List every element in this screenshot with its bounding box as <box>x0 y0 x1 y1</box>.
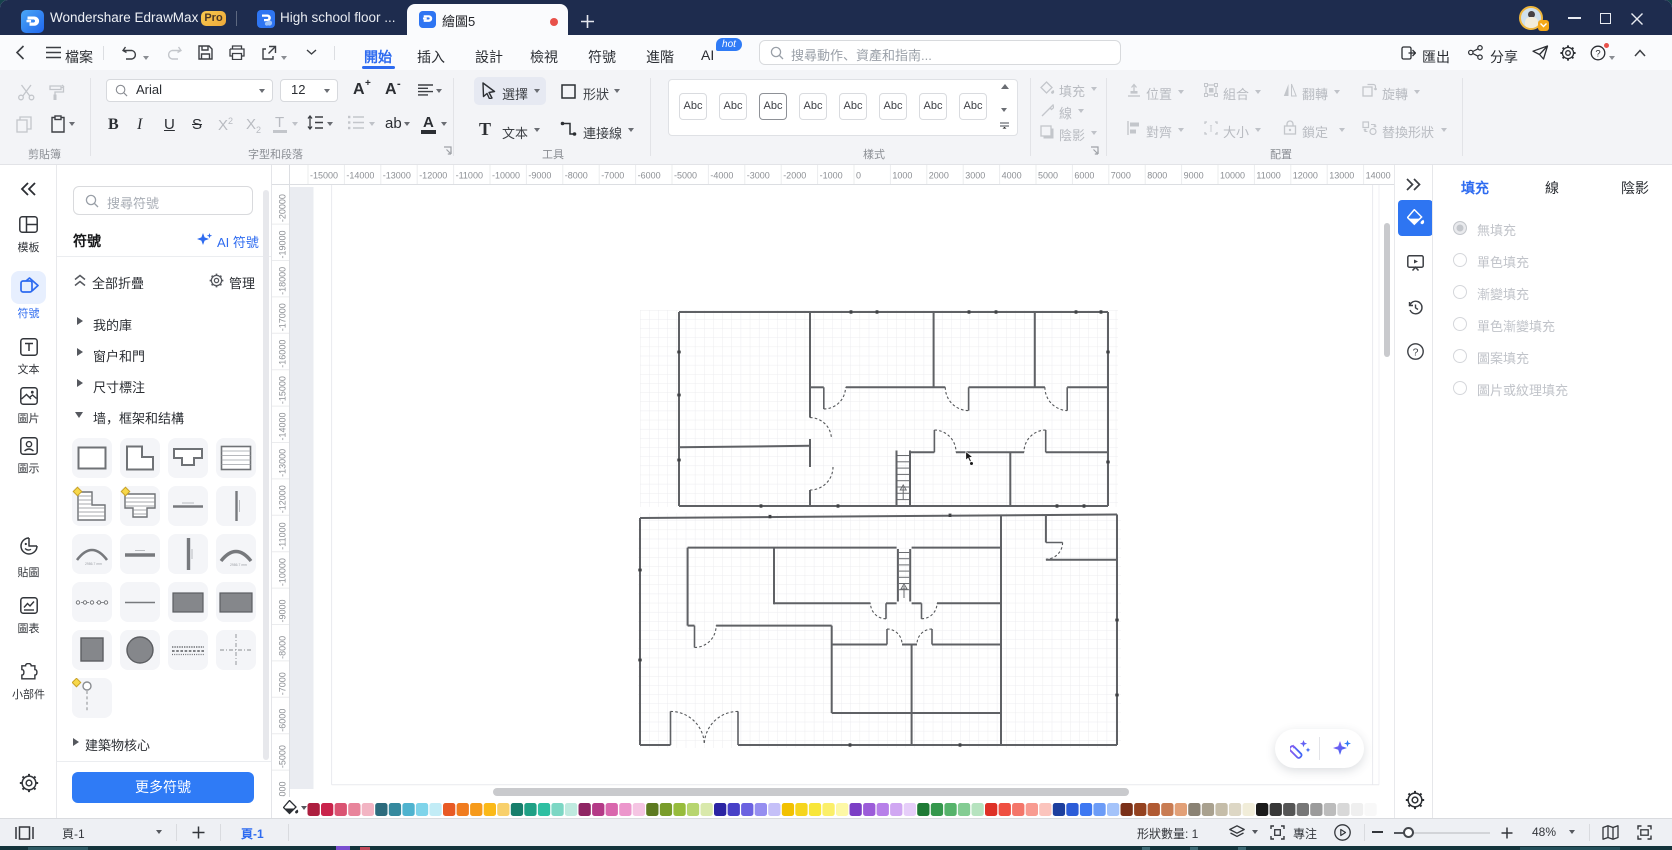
svg-text:-14000: -14000 <box>346 171 374 181</box>
svg-text:-10000: -10000 <box>278 558 288 586</box>
svg-text:-5000: -5000 <box>278 745 288 768</box>
svg-text:-7000: -7000 <box>278 672 288 695</box>
svg-text:5000: 5000 <box>1038 171 1058 181</box>
svg-text:2986.7 mm: 2986.7 mm <box>230 563 247 567</box>
svg-text:2986.7 mm: 2986.7 mm <box>85 562 102 566</box>
svg-text:-12000: -12000 <box>419 171 447 181</box>
svg-text:?: ? <box>1413 346 1419 358</box>
svg-text:-1000: -1000 <box>820 171 843 181</box>
svg-text:11000: 11000 <box>1256 171 1280 181</box>
svg-text:2000: 2000 <box>929 171 949 181</box>
svg-text:-9000: -9000 <box>528 171 551 181</box>
svg-text:-2000: -2000 <box>783 171 806 181</box>
svg-text:-15000: -15000 <box>310 171 338 181</box>
svg-text:10000: 10000 <box>1220 171 1245 181</box>
svg-text:1000: 1000 <box>892 171 912 181</box>
svg-text:0: 0 <box>856 171 861 181</box>
svg-text:13000: 13000 <box>1329 171 1354 181</box>
svg-text:-5000: -5000 <box>674 171 697 181</box>
svg-text:-8000: -8000 <box>278 636 288 659</box>
svg-text:-17000: -17000 <box>278 303 288 331</box>
svg-text:-6000: -6000 <box>278 709 288 732</box>
svg-text:-3000: -3000 <box>747 171 770 181</box>
svg-text:?: ? <box>1595 48 1600 59</box>
svg-text:14000: 14000 <box>1366 171 1391 181</box>
svg-text:-19000: -19000 <box>278 230 288 258</box>
svg-text:-11000: -11000 <box>278 522 288 549</box>
svg-text:-12000: -12000 <box>278 485 288 513</box>
svg-text:-20000: -20000 <box>278 194 288 222</box>
svg-text:-15000: -15000 <box>278 376 288 404</box>
svg-text:-10000: -10000 <box>492 171 520 181</box>
svg-text:8000: 8000 <box>1147 171 1167 181</box>
svg-text:7000: 7000 <box>1111 171 1131 181</box>
svg-text:-7000: -7000 <box>601 171 624 181</box>
svg-text:-9000: -9000 <box>278 599 288 622</box>
svg-text:-4000: -4000 <box>710 171 733 181</box>
svg-text:-14000: -14000 <box>278 412 288 440</box>
svg-text:3000: 3000 <box>965 171 985 181</box>
svg-text:-6000: -6000 <box>638 171 661 181</box>
svg-text:-13000: -13000 <box>278 449 288 477</box>
svg-text:-13000: -13000 <box>383 171 411 181</box>
svg-text:6000: 6000 <box>1074 171 1094 181</box>
svg-text:-18000: -18000 <box>278 267 288 295</box>
svg-text:I: I <box>1210 124 1213 134</box>
svg-text:-16000: -16000 <box>278 340 288 368</box>
svg-text:4000: 4000 <box>1002 171 1022 181</box>
svg-text:-8000: -8000 <box>565 171 588 181</box>
svg-text:12000: 12000 <box>1293 171 1318 181</box>
svg-text:-11000: -11000 <box>456 171 483 181</box>
svg-text:9000: 9000 <box>1184 171 1204 181</box>
